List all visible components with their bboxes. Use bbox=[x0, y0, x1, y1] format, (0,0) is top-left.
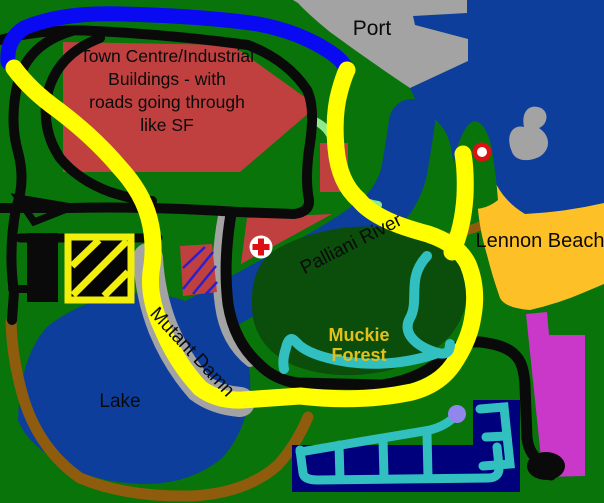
hazard-square bbox=[68, 237, 131, 300]
port-label: Port bbox=[353, 17, 392, 40]
lighthouse-marker-icon bbox=[473, 143, 492, 162]
road-end-blob bbox=[527, 452, 565, 480]
town-label-line3: roads going through bbox=[89, 92, 245, 112]
town-label-line2: Buildings - with bbox=[108, 69, 226, 89]
hospital-cross-icon bbox=[250, 236, 273, 259]
beach-label: Lennon Beach bbox=[475, 230, 604, 252]
town-label-line1: Town Centre/Industrial bbox=[80, 46, 254, 66]
marina-dot bbox=[448, 405, 466, 423]
striped-red-plot bbox=[180, 244, 217, 296]
town-label-line4: like SF bbox=[140, 115, 193, 135]
forest-label-line1: Muckie bbox=[328, 325, 389, 345]
black-warehouse-building bbox=[27, 233, 58, 302]
map-canvas: Port Town Centre/Industrial Buildings - … bbox=[0, 0, 604, 503]
lake-label: Lake bbox=[99, 391, 140, 412]
forest-label-line2: Forest bbox=[331, 345, 386, 365]
